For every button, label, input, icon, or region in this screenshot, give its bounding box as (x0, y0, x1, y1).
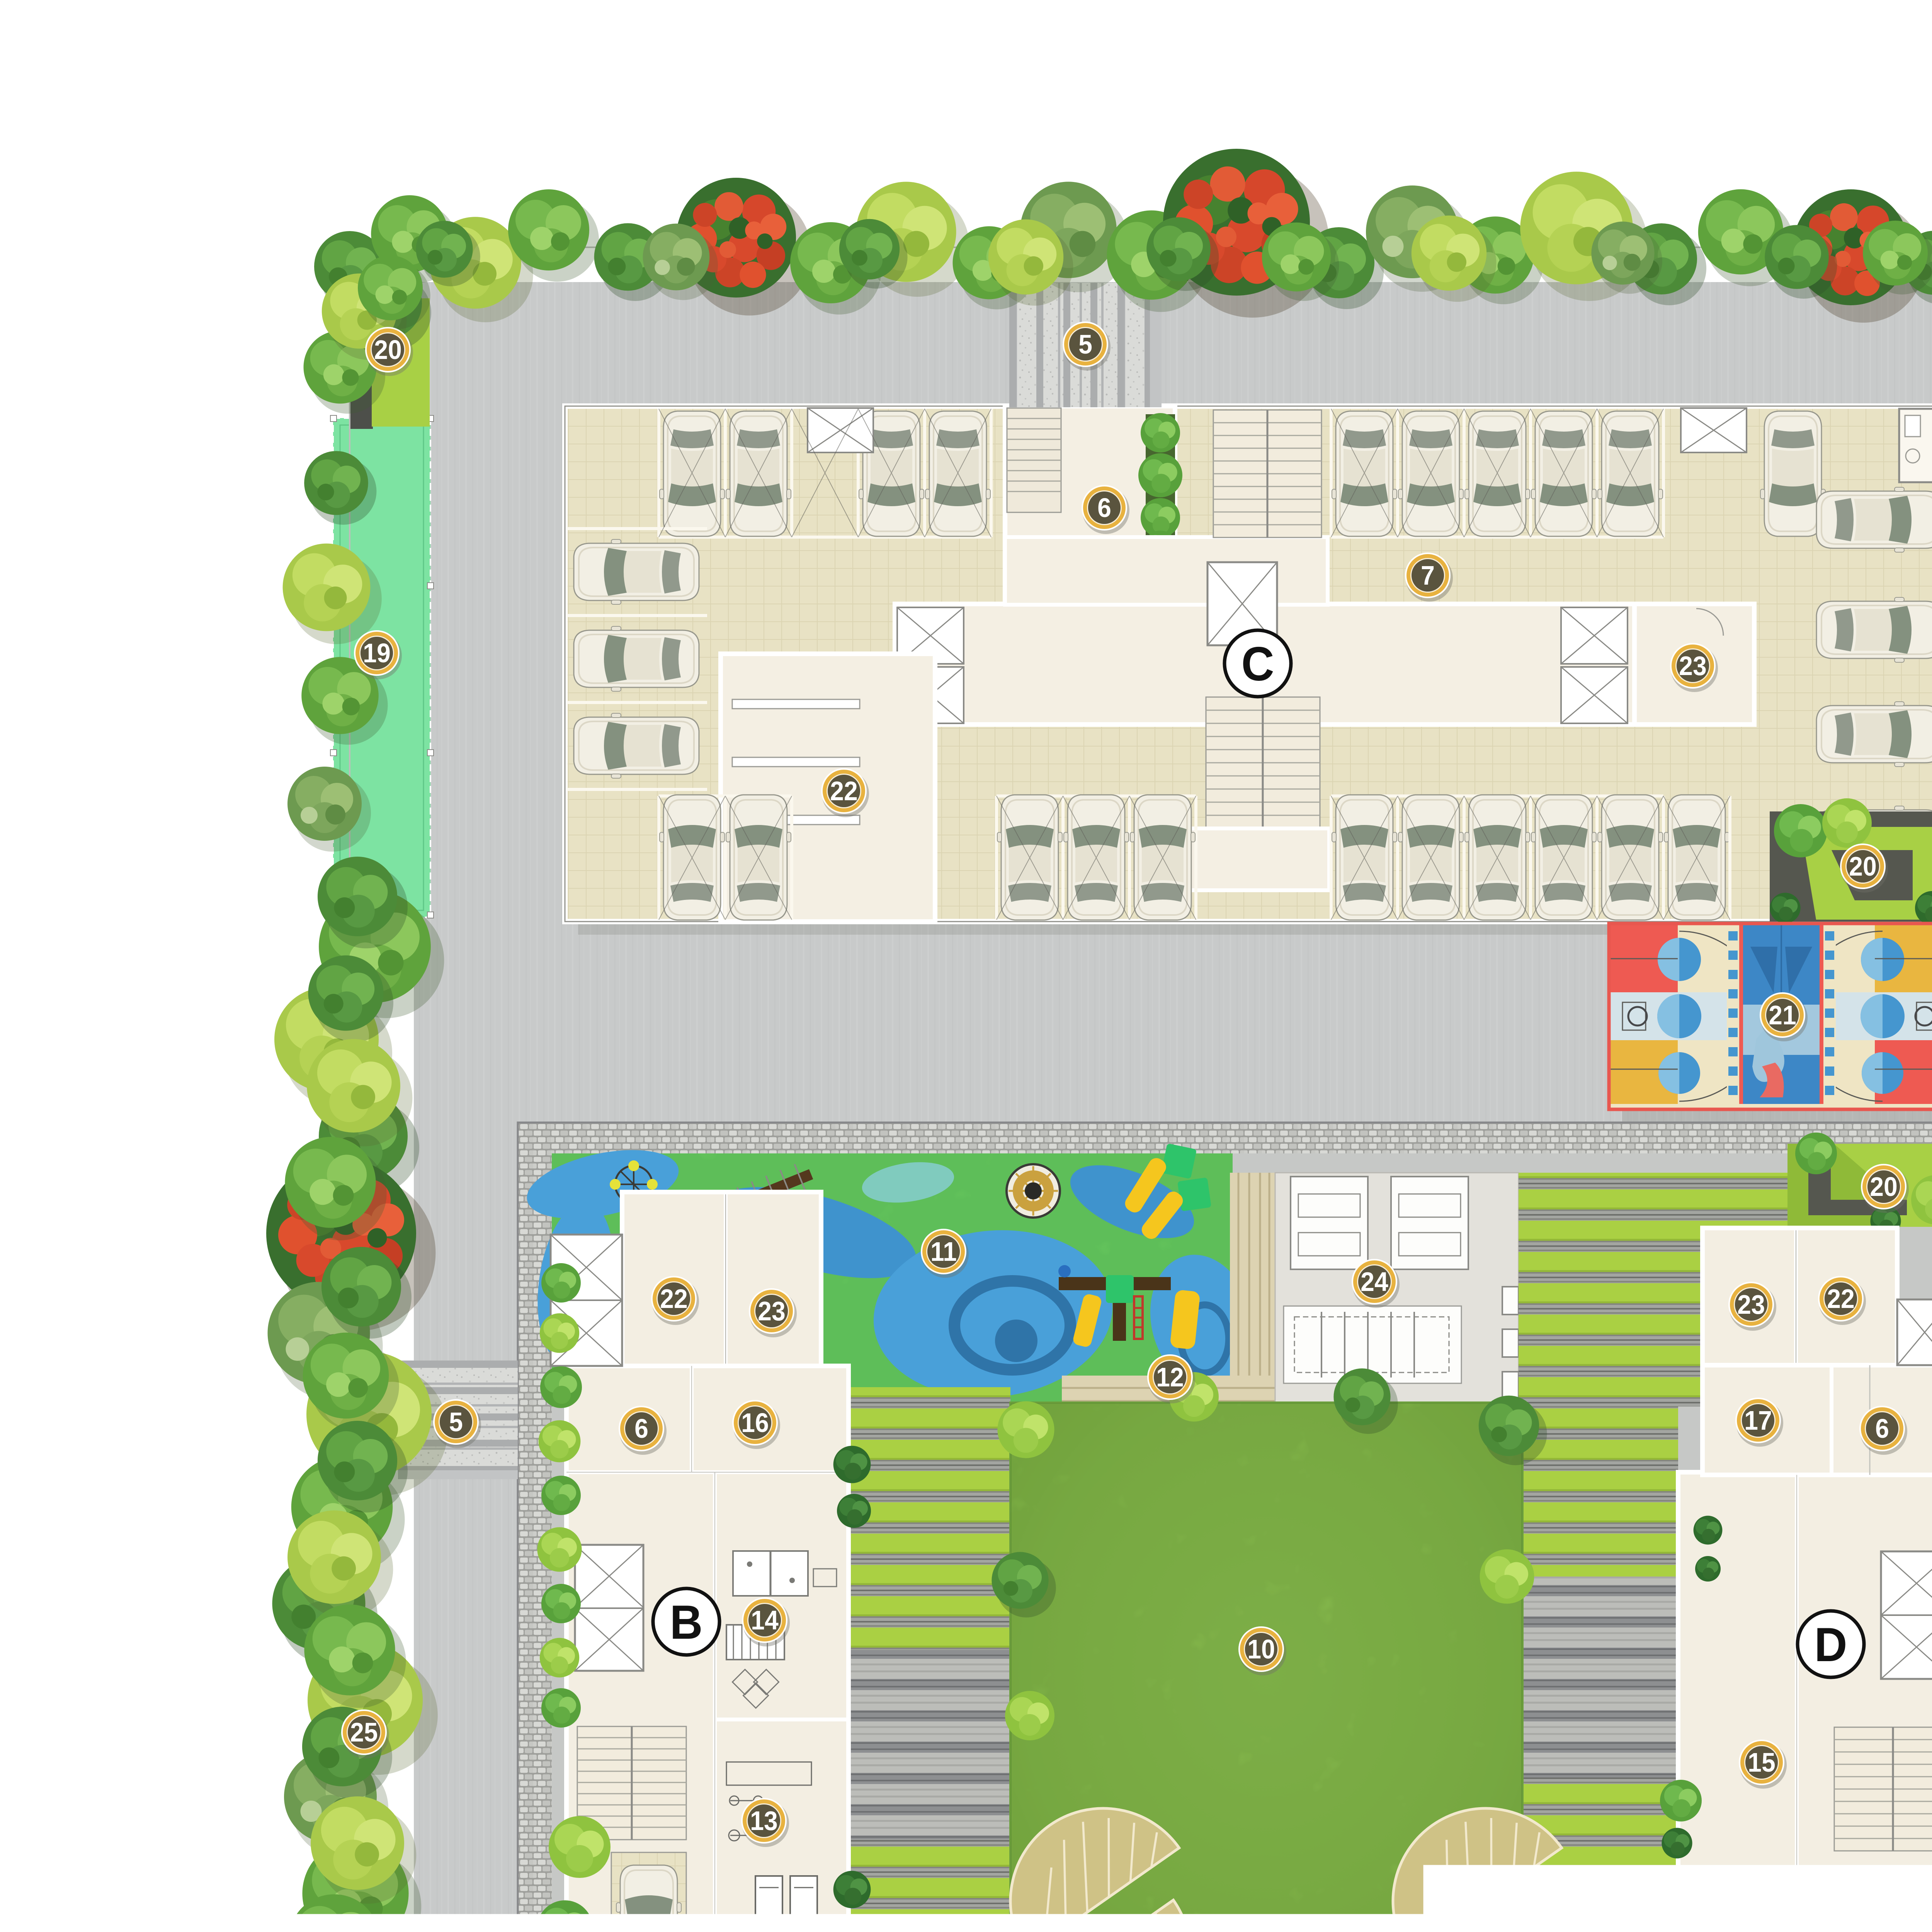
svg-text:22: 22 (660, 1284, 688, 1314)
svg-text:5: 5 (1078, 330, 1092, 360)
svg-text:23: 23 (758, 1296, 786, 1327)
svg-text:B: B (670, 1595, 702, 1649)
svg-text:25: 25 (350, 1718, 378, 1748)
svg-text:22: 22 (1827, 1284, 1855, 1314)
svg-text:20: 20 (1849, 852, 1877, 882)
svg-text:19: 19 (363, 638, 391, 668)
svg-text:6: 6 (1097, 493, 1111, 523)
svg-text:5: 5 (449, 1407, 463, 1437)
svg-text:6: 6 (634, 1414, 648, 1444)
svg-text:14: 14 (751, 1605, 779, 1636)
svg-text:13: 13 (750, 1806, 778, 1836)
svg-text:23: 23 (1737, 1290, 1765, 1320)
svg-text:7: 7 (1421, 561, 1435, 591)
svg-text:17: 17 (1744, 1406, 1772, 1436)
svg-text:D: D (1814, 1618, 1847, 1671)
svg-text:12: 12 (1156, 1362, 1184, 1393)
svg-text:11: 11 (930, 1237, 957, 1267)
svg-text:16: 16 (741, 1408, 769, 1438)
svg-text:21: 21 (1769, 1000, 1796, 1031)
svg-text:C: C (1241, 637, 1274, 690)
svg-text:20: 20 (374, 335, 402, 365)
svg-text:15: 15 (1748, 1748, 1776, 1778)
svg-text:23: 23 (1679, 651, 1707, 681)
svg-text:10: 10 (1247, 1634, 1275, 1665)
svg-text:20: 20 (1870, 1172, 1898, 1202)
svg-text:6: 6 (1875, 1414, 1889, 1444)
svg-text:24: 24 (1361, 1267, 1388, 1297)
svg-text:22: 22 (830, 776, 858, 806)
